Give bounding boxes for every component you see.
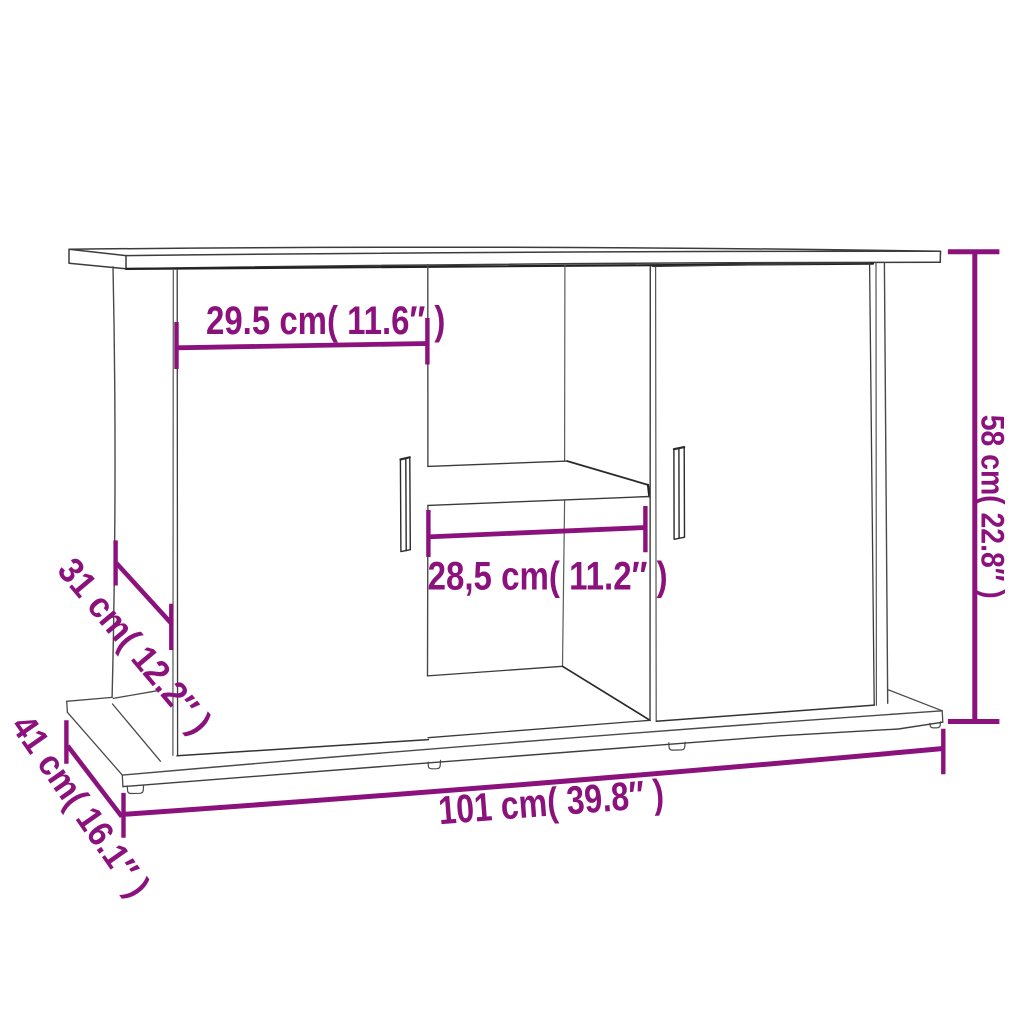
svg-text:29.5 cm( 11.6″ ): 29.5 cm( 11.6″ )	[206, 299, 445, 343]
svg-text:28,5 cm( 11.2″ ): 28,5 cm( 11.2″ )	[428, 554, 668, 598]
svg-text:58 cm( 22.8″ ): 58 cm( 22.8″ )	[974, 415, 1010, 599]
